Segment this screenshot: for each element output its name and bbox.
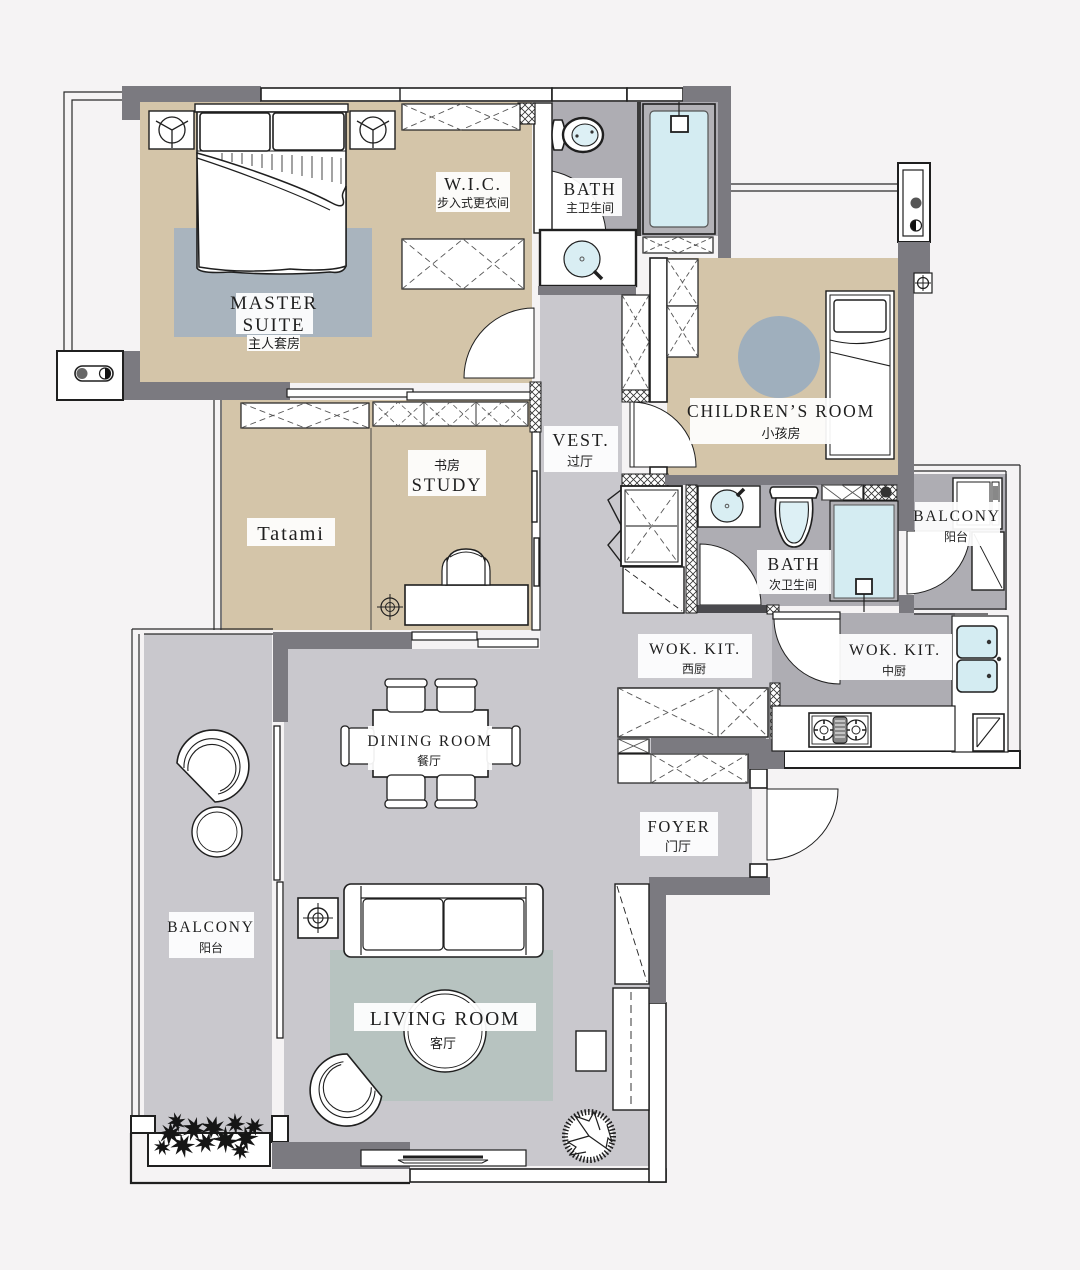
svg-text:STUDY: STUDY: [412, 476, 483, 496]
svg-text:WOK. KIT.: WOK. KIT.: [649, 641, 741, 658]
svg-text:步入式更衣间: 步入式更衣间: [437, 195, 509, 210]
svg-text:主人套房: 主人套房: [248, 336, 300, 351]
svg-text:主卫生间: 主卫生间: [566, 201, 614, 215]
svg-text:BATH: BATH: [768, 554, 821, 574]
svg-text:次卫生间: 次卫生间: [769, 578, 817, 592]
svg-text:MASTER: MASTER: [230, 293, 318, 314]
svg-text:VEST.: VEST.: [552, 430, 609, 450]
svg-text:WOK. KIT.: WOK. KIT.: [849, 642, 941, 659]
svg-text:DINING ROOM: DINING ROOM: [367, 733, 492, 750]
svg-text:门厅: 门厅: [665, 839, 691, 854]
svg-text:BATH: BATH: [564, 179, 617, 199]
svg-text:客厅: 客厅: [430, 1036, 456, 1051]
svg-text:小孩房: 小孩房: [761, 426, 800, 441]
svg-text:CHILDREN’S ROOM: CHILDREN’S ROOM: [687, 401, 875, 421]
svg-text:SUITE: SUITE: [243, 315, 306, 336]
svg-text:餐厅: 餐厅: [417, 753, 441, 768]
svg-text:阳台: 阳台: [944, 529, 968, 544]
svg-text:BALCONY: BALCONY: [167, 919, 255, 936]
svg-text:BALCONY: BALCONY: [913, 508, 1001, 525]
svg-text:过厅: 过厅: [567, 454, 593, 469]
svg-text:西厨: 西厨: [682, 662, 706, 676]
svg-text:中厨: 中厨: [882, 663, 906, 678]
svg-text:LIVING ROOM: LIVING ROOM: [370, 1009, 520, 1030]
svg-text:FOYER: FOYER: [647, 817, 710, 836]
svg-text:书房: 书房: [434, 458, 460, 473]
svg-text:Tatami: Tatami: [257, 523, 324, 545]
svg-text:阳台: 阳台: [199, 940, 223, 955]
svg-text:W.I.C.: W.I.C.: [444, 174, 502, 194]
